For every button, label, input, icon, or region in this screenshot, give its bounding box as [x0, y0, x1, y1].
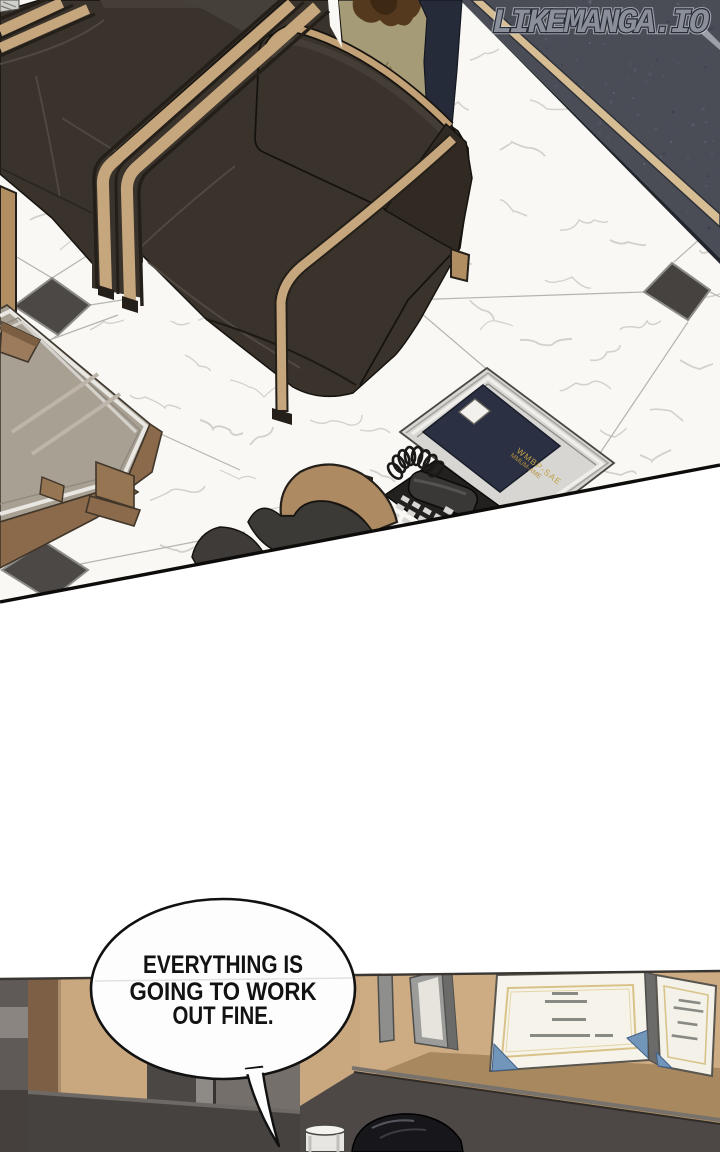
- svg-text:LIKEMANGA.IO: LIKEMANGA.IO: [492, 5, 710, 43]
- svg-text:EVERYTHING IS: EVERYTHING IS: [143, 951, 303, 979]
- svg-text:OUT FINE.: OUT FINE.: [173, 1002, 274, 1030]
